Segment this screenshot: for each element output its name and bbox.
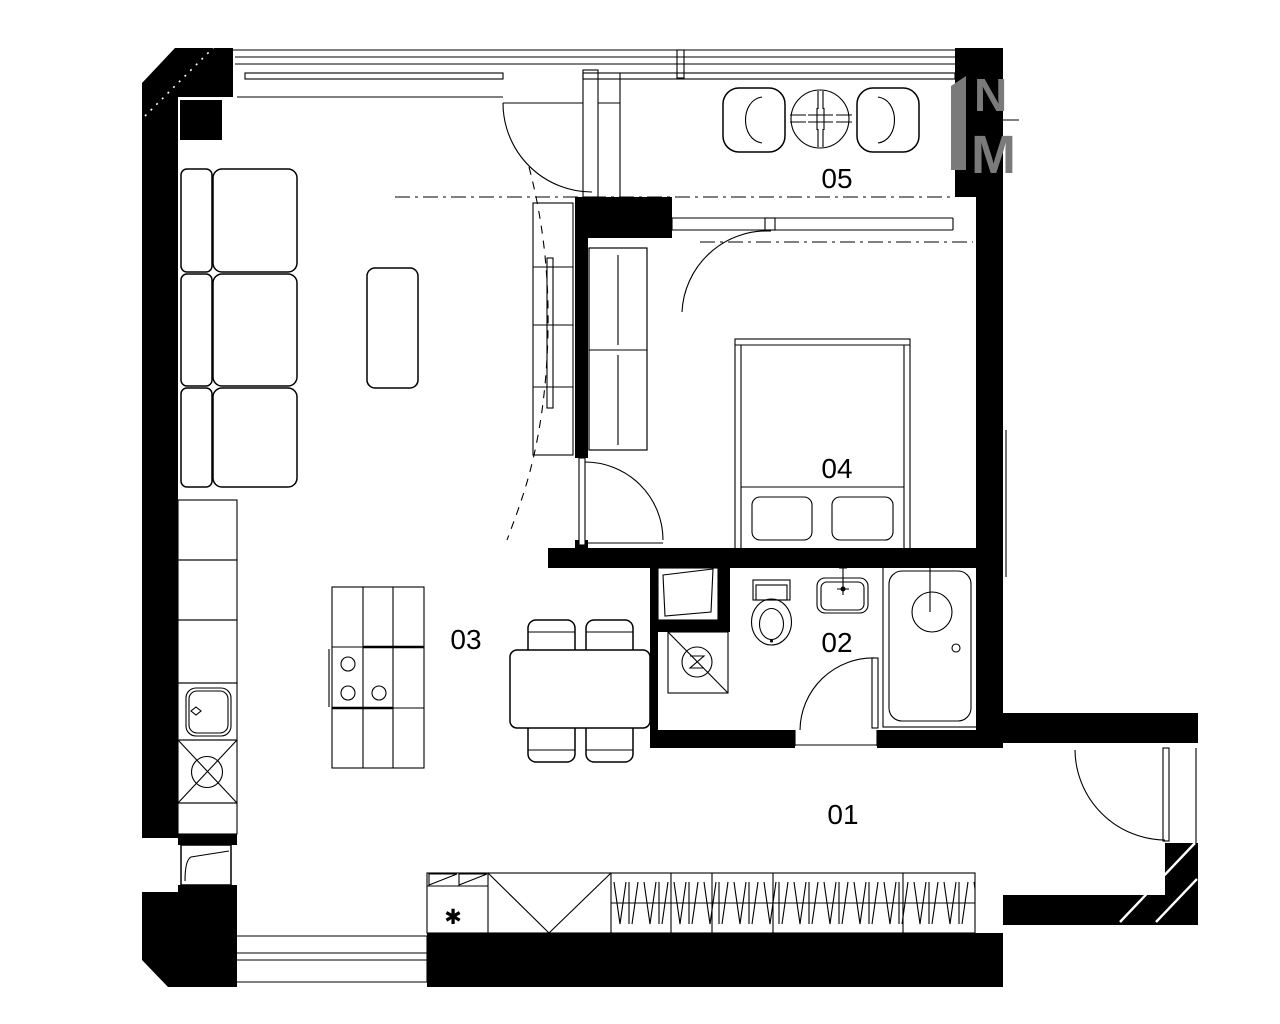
wall-bedroom-left bbox=[575, 238, 588, 458]
kitchen-sink bbox=[186, 688, 231, 736]
wall-bottom bbox=[427, 933, 1003, 987]
bed bbox=[735, 339, 910, 550]
wardrobe-shelf-cell bbox=[427, 874, 488, 886]
window-top bbox=[175, 50, 955, 97]
toilet bbox=[752, 580, 792, 645]
watermark-logo: N M bbox=[951, 69, 1016, 185]
floor-plan-page: ✱ 01 02 03 04 05 N M bbox=[0, 0, 1280, 1024]
dining-table bbox=[510, 650, 650, 728]
balcony-chair-right-backrest bbox=[878, 97, 895, 143]
wall-bathroom-bottom-left bbox=[650, 730, 795, 748]
washing-machine bbox=[668, 632, 728, 693]
room-label-01: 01 bbox=[827, 799, 858, 830]
pillar bbox=[180, 100, 222, 140]
hallway-wardrobe: ✱ bbox=[427, 873, 975, 933]
bathroom-door bbox=[795, 658, 878, 746]
window-bottom bbox=[237, 936, 427, 982]
wall-left-window-top-strip bbox=[178, 834, 237, 845]
room-label-03: 03 bbox=[450, 624, 481, 655]
kitchen-counter bbox=[178, 500, 237, 834]
pivot-panel-swing-line bbox=[507, 167, 548, 540]
pillow bbox=[832, 497, 893, 540]
balcony-chair-left-backrest bbox=[746, 97, 763, 143]
washbasin bbox=[817, 564, 868, 613]
wall-hall-top-right bbox=[976, 713, 1198, 743]
wall-right bbox=[976, 197, 1003, 713]
wall-left bbox=[142, 130, 178, 838]
wardrobe-marker: ✱ bbox=[444, 905, 462, 929]
walls bbox=[128, 43, 1198, 987]
room-label-05: 05 bbox=[821, 163, 852, 194]
wall-left-window-bottom-strip bbox=[178, 885, 237, 892]
bedroom-wardrobe bbox=[589, 248, 647, 450]
wall-shaft-bottom bbox=[658, 620, 730, 632]
bathtub bbox=[883, 548, 977, 727]
living-room bbox=[181, 167, 573, 540]
floor-plan-drawing: ✱ 01 02 03 04 05 N M bbox=[0, 0, 1280, 1024]
watermark-letter-n: N bbox=[974, 69, 1007, 121]
balcony-table bbox=[790, 90, 852, 148]
kitchen bbox=[178, 500, 424, 834]
balcony-chair-right bbox=[857, 88, 919, 152]
windows bbox=[175, 50, 1196, 982]
dining-area bbox=[510, 620, 650, 762]
entrance-door bbox=[1075, 748, 1169, 841]
bathroom bbox=[658, 548, 977, 727]
pillow bbox=[752, 497, 812, 540]
coffee-table bbox=[367, 268, 418, 388]
balcony-chair-left bbox=[723, 88, 785, 152]
balcony-door-frame bbox=[503, 70, 620, 197]
kitchen-appliance bbox=[178, 740, 237, 803]
watermark-shape bbox=[951, 76, 966, 170]
bedroom-window bbox=[672, 218, 953, 230]
bedroom-door bbox=[579, 458, 663, 545]
wardrobe-mirror-cell bbox=[488, 873, 611, 933]
balcony-door-bedroom bbox=[682, 231, 771, 312]
wall-living-bedroom-block bbox=[575, 197, 672, 238]
media-cabinet bbox=[533, 203, 573, 455]
balcony-door-living bbox=[503, 103, 592, 192]
room-label-04: 04 bbox=[821, 453, 852, 484]
sofa bbox=[181, 169, 297, 487]
wall-corner-bottom-left bbox=[142, 892, 237, 987]
wall-bathroom-left bbox=[650, 568, 658, 748]
service-shaft bbox=[658, 568, 718, 620]
kitchen-island bbox=[329, 587, 424, 768]
watermark-letter-m: M bbox=[971, 125, 1016, 185]
balcony-terrace bbox=[723, 88, 919, 152]
window-left-small bbox=[181, 845, 231, 885]
bedroom bbox=[589, 248, 910, 550]
room-label-02: 02 bbox=[821, 627, 852, 658]
